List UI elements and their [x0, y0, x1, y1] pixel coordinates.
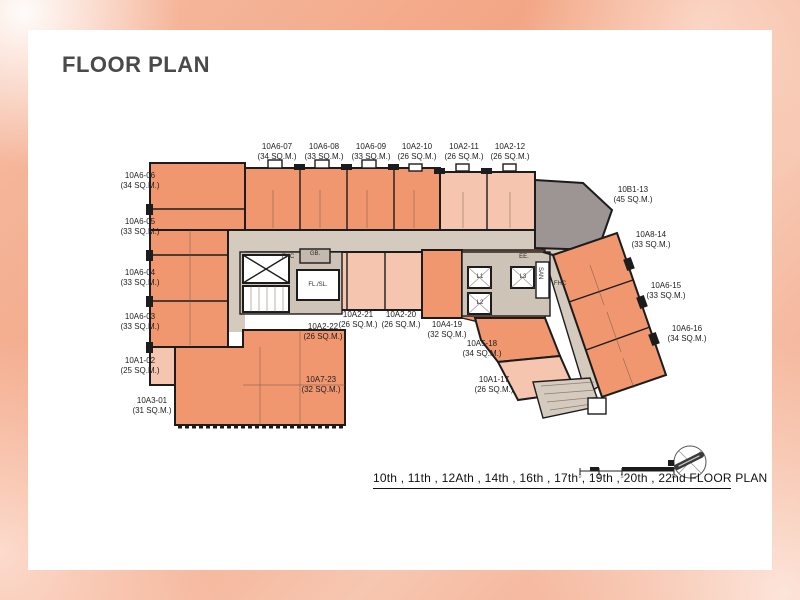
unit-label-10A8-14: 10A8-14(33 SQ.M.) — [631, 230, 670, 251]
unit-label-10A3-01: 10A3-01(31 SQ.M.) — [132, 396, 171, 417]
unit-label-10A2-10: 10A2-10(26 SQ.M.) — [397, 142, 436, 163]
unit-label-10A2-11: 10A2-11(26 SQ.M.) — [444, 142, 483, 163]
unit-label-10A2-12: 10A2-12(26 SQ.M.) — [490, 142, 529, 163]
unit-label-10A6-07: 10A6-07(34 SQ.M.) — [257, 142, 296, 163]
unit-label-10A2-20: 10A2-20(26 SQ.M.) — [381, 310, 420, 331]
unit-label-10A2-21: 10A2-21(26 SQ.M.) — [338, 310, 377, 331]
unit-label-10A6-09: 10A6-09(33 SQ.M.) — [351, 142, 390, 163]
floor-plan-card: FLOOR PLAN — [28, 30, 772, 570]
unit-label-10A2-22: 10A2-22(26 SQ.M.) — [303, 322, 342, 343]
unit-label-10A6-04: 10A6-04(33 SQ.M.) — [120, 268, 159, 289]
core-label-l2: L2 — [477, 300, 484, 306]
unit-label-10A6-03: 10A6-03(33 SQ.M.) — [120, 312, 159, 333]
scale-tick-5: 5 — [621, 474, 624, 480]
unit-label-10A1-02: 10A1-02(25 SQ.M.) — [120, 356, 159, 377]
unit-label-10A6-05: 10A6-05(33 SQ.M.) — [120, 217, 159, 238]
unit-label-10A6-08: 10A6-08(33 SQ.M.) — [304, 142, 343, 163]
core-label-fhc-right: FHC — [554, 281, 566, 287]
right-core — [462, 252, 550, 316]
core-label-san: SAN — [537, 267, 543, 279]
unit-label-10A1-17: 10A1-17(26 SQ.M.) — [474, 375, 513, 396]
core-label-fhc-left: FHC — [282, 254, 294, 260]
core-label-l1: L1 — [477, 274, 484, 280]
core-label-l3: L3 — [520, 274, 527, 280]
unit-label-10A5-18: 10A5-18(34 SQ.M.) — [462, 339, 501, 360]
top-wing-units — [245, 168, 535, 230]
scale-tick-10: 10 — [671, 474, 677, 480]
unit-label-10A6-06: 10A6-06(34 SQ.M.) — [120, 171, 159, 192]
floor-plan-caption: 10th , 11th , 12Ath , 14th , 16th , 17th… — [373, 471, 731, 489]
page-background: FLOOR PLAN — [0, 0, 800, 600]
core-label-lift: FL./SL. — [308, 282, 327, 288]
unit-label-10A6-16: 10A6-16(34 SQ.M.) — [667, 324, 706, 345]
unit-label-10A7-23: 10A7-23(32 SQ.M.) — [301, 375, 340, 396]
scale-tick-2: 2 — [598, 474, 601, 480]
unit-label-10A6-15: 10A6-15(33 SQ.M.) — [646, 281, 685, 302]
core-label-ee: EE. — [519, 254, 529, 260]
unit-label-10B1-13: 10B1-13(45 SQ.M.) — [613, 185, 652, 206]
core-label-gb: GB. — [310, 251, 320, 257]
scale-tick-0: 0 — [579, 474, 582, 480]
unit-label-10A4-19: 10A4-19(32 SQ.M.) — [427, 320, 466, 341]
